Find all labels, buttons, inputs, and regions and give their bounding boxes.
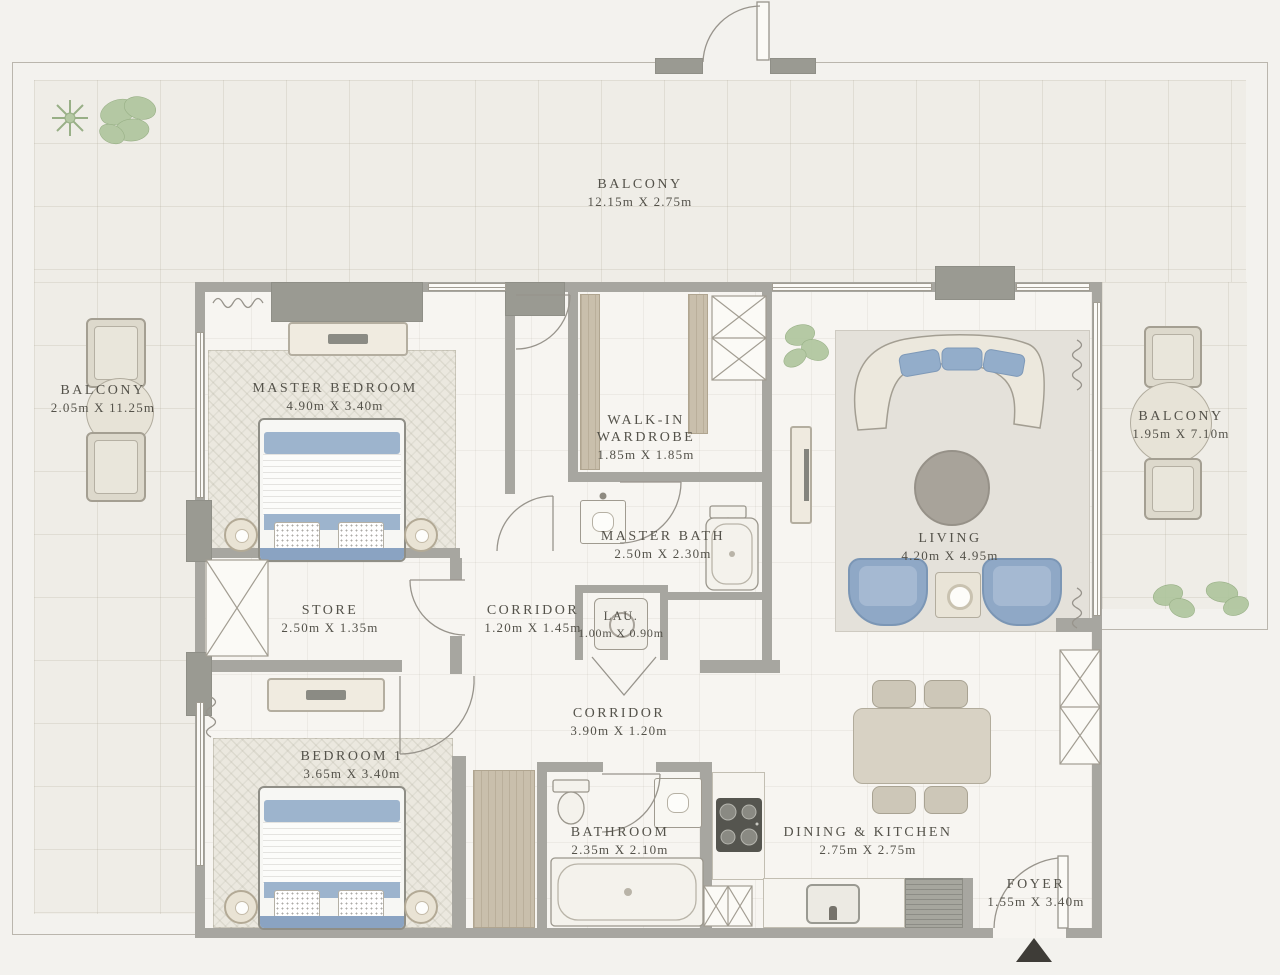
cooktop-burners <box>720 804 759 845</box>
room-name: CORRIDOR <box>484 602 581 619</box>
room-name: DINING & KITCHEN <box>783 824 952 841</box>
top-door-leaf <box>757 2 769 60</box>
hall-closet <box>1060 650 1100 764</box>
room-dims: 4.90m X 3.40m <box>252 397 417 414</box>
sofa <box>855 335 1045 430</box>
floor-plan: BALCONY 12.15m X 2.75m BALCONY 2.05m X 1… <box>0 0 1280 975</box>
room-label-walkin-wardrobe: WALK-IN WARDROBE 1.85m X 1.85m <box>576 412 716 463</box>
plant <box>781 321 832 370</box>
room-name: BEDROOM 1 <box>300 748 403 765</box>
room-name: MASTER BATH <box>601 528 725 545</box>
room-dims: 1.85m X 1.85m <box>576 446 716 463</box>
room-name: CORRIDOR <box>570 705 667 722</box>
curtain-squiggle <box>207 697 216 737</box>
room-dims: 2.50m X 2.30m <box>601 545 725 562</box>
room-dims: 2.35m X 2.10m <box>571 841 670 858</box>
room-name: BALCONY <box>588 176 693 193</box>
room-name: LIVING <box>901 530 998 547</box>
curtain-squiggle <box>213 299 263 308</box>
room-label-balcony-left: BALCONY 2.05m X 11.25m <box>51 382 155 416</box>
bathtub <box>551 858 703 926</box>
room-label-corridor-2: CORRIDOR 3.90m X 1.20m <box>570 705 667 739</box>
room-dims: 2.75m X 2.75m <box>783 841 952 858</box>
room-dims: 4.20m X 4.95m <box>901 547 998 564</box>
bathroom-toilet <box>553 780 589 824</box>
room-dims: 1.00m X 0.90m <box>578 625 664 642</box>
room-dims: 2.05m X 11.25m <box>51 399 155 416</box>
room-label-balcony-right: BALCONY 1.95m X 7.10m <box>1132 408 1229 442</box>
wardrobe-closet <box>712 296 766 380</box>
kitchen-cabinet <box>704 886 752 926</box>
room-label-living: LIVING 4.20m X 4.95m <box>901 530 998 564</box>
room-dims: 1.20m X 1.45m <box>484 619 581 636</box>
entry-marker-triangle <box>1016 938 1052 962</box>
room-label-laundry: LAU. 1.00m X 0.90m <box>578 608 664 642</box>
room-dims: 12.15m X 2.75m <box>588 193 693 210</box>
plant <box>52 100 88 136</box>
room-name: STORE <box>281 602 378 619</box>
room-name: LAU. <box>578 608 664 625</box>
curtain-squiggle <box>1073 340 1082 390</box>
room-name: BATHROOM <box>571 824 670 841</box>
room-label-master-bedroom: MASTER BEDROOM 4.90m X 3.40m <box>252 380 417 414</box>
walkin-door <box>516 295 570 349</box>
room-label-foyer: FOYER 1.55m X 3.40m <box>987 876 1084 910</box>
plant <box>96 93 158 147</box>
room-label-store: STORE 2.50m X 1.35m <box>281 602 378 636</box>
top-door-arc <box>703 6 760 62</box>
bedroom1-door <box>400 676 474 754</box>
room-name: FOYER <box>987 876 1084 893</box>
store-door <box>410 580 465 635</box>
room-dims: 3.65m X 3.40m <box>300 765 403 782</box>
store-shelving <box>206 560 268 656</box>
room-dims: 1.95m X 7.10m <box>1132 425 1229 442</box>
room-label-corridor-1: CORRIDOR 1.20m X 1.45m <box>484 602 581 636</box>
room-name: MASTER BEDROOM <box>252 380 417 397</box>
room-label-bedroom-1: BEDROOM 1 3.65m X 3.40m <box>300 748 403 782</box>
plant <box>1151 579 1251 621</box>
room-name: BALCONY <box>51 382 155 399</box>
room-label-master-bath: MASTER BATH 2.50m X 2.30m <box>601 528 725 562</box>
sink-faucet <box>600 493 607 500</box>
room-name: WALK-IN WARDROBE <box>576 412 716 446</box>
room-dims: 1.55m X 3.40m <box>987 893 1084 910</box>
room-label-dining-kitchen: DINING & KITCHEN 2.75m X 2.75m <box>783 824 952 858</box>
master-bedroom-door <box>497 496 553 551</box>
laundry-bifold-door <box>592 657 656 695</box>
room-dims: 2.50m X 1.35m <box>281 619 378 636</box>
room-name: BALCONY <box>1132 408 1229 425</box>
curtain-squiggle <box>1073 588 1082 628</box>
room-dims: 3.90m X 1.20m <box>570 722 667 739</box>
room-label-bathroom: BATHROOM 2.35m X 2.10m <box>571 824 670 858</box>
room-label-balcony-top: BALCONY 12.15m X 2.75m <box>588 176 693 210</box>
